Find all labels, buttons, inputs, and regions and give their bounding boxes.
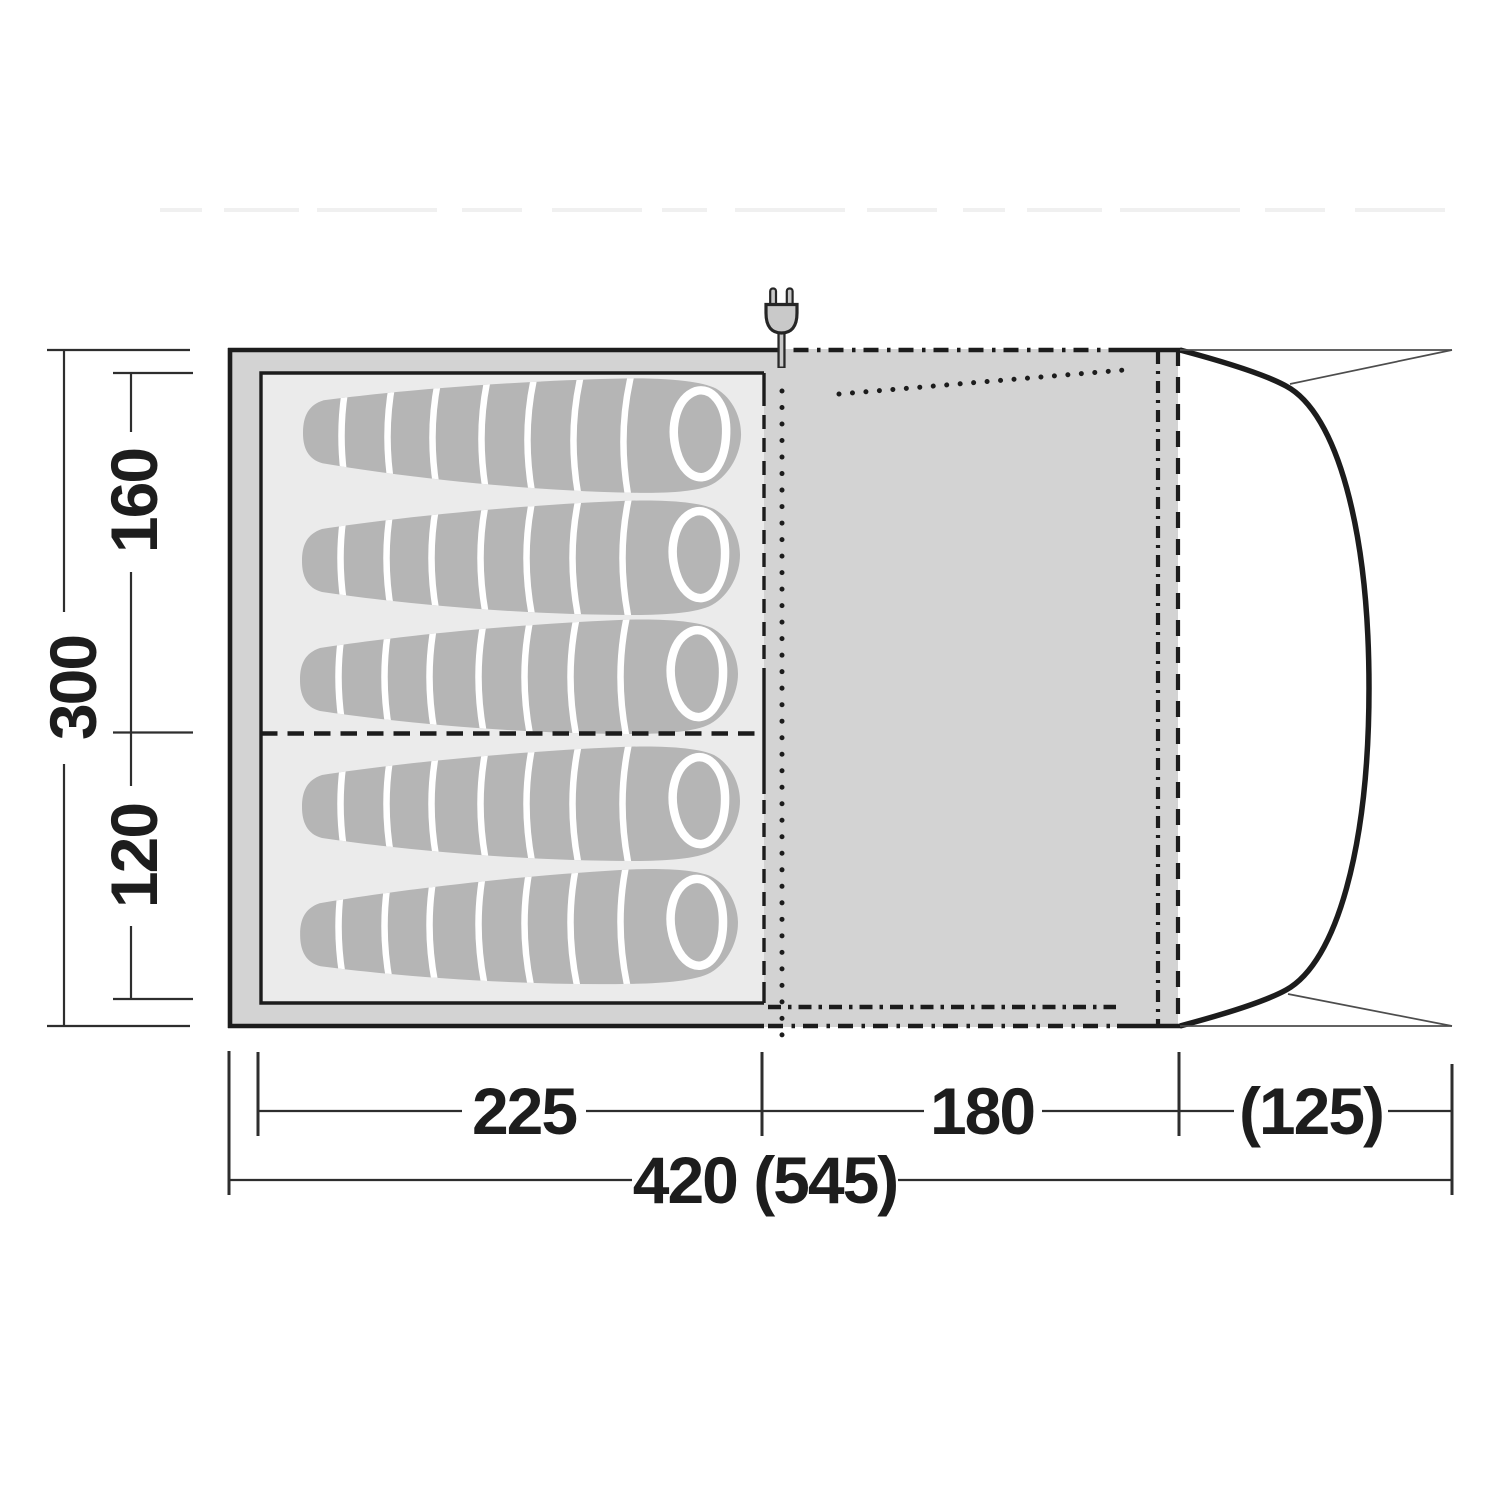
svg-text:300: 300 [36,636,110,740]
svg-text:420 (545): 420 (545) [633,1143,898,1217]
svg-text:120: 120 [97,804,171,908]
svg-text:225: 225 [472,1074,576,1148]
svg-text:180: 180 [930,1074,1034,1148]
svg-text:(125): (125) [1239,1074,1383,1148]
svg-text:160: 160 [97,449,171,553]
